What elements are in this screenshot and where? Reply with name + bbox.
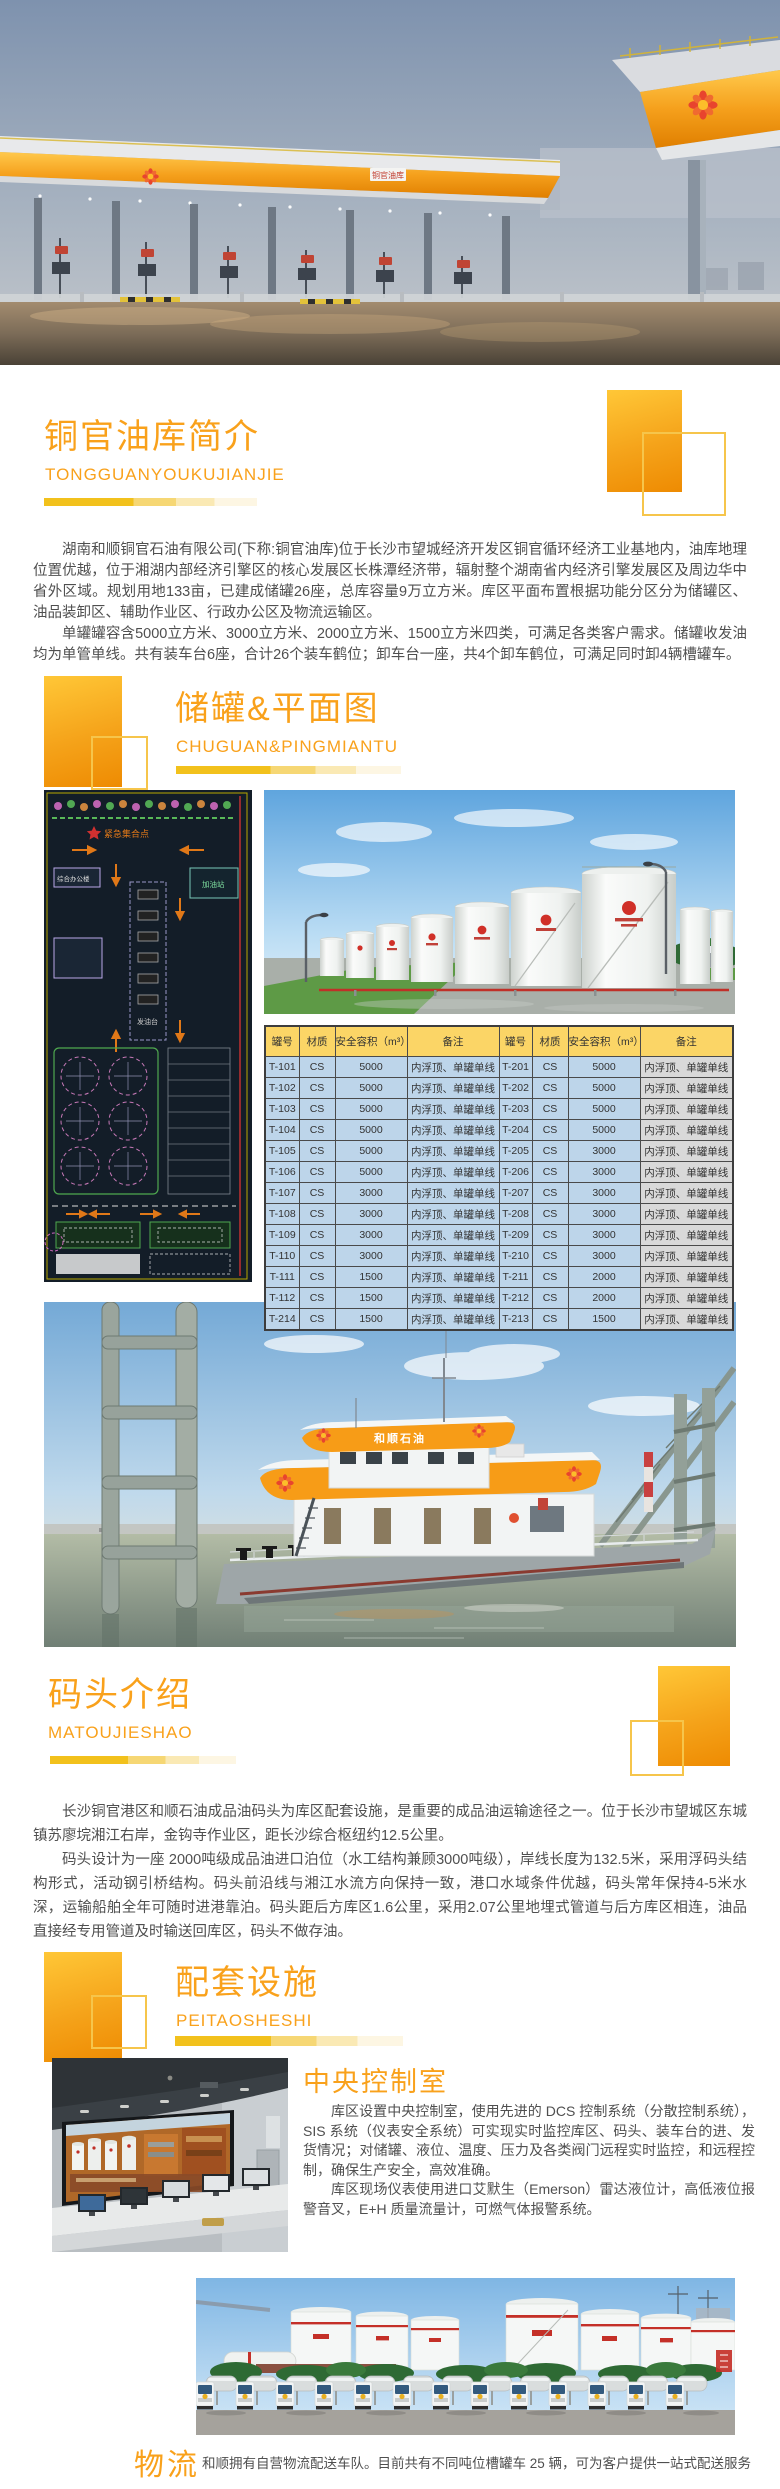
dock-paragraph-1: 长沙铜官港区和顺石油成品油码头为库区配套设施，是重要的成品油运输途径之一。位于长… [33,1800,747,1848]
table-cell: 内浮顶、单罐单线 [640,1162,733,1183]
table-cell: 5000 [568,1057,640,1078]
logistics-text: 和顺拥有自营物流配送车队。目前共有不同吨位槽罐车 25 辆，可为客户提供一站式配… [202,2452,751,2472]
table-cell: T-206 [499,1162,532,1183]
table-cell: CS [299,1204,335,1225]
section-subtitle-intro: TONGGUANYOUKUJIANJIE [45,466,285,483]
table-cell: T-202 [499,1078,532,1099]
table-cell: T-104 [265,1120,299,1141]
site-plan-cad-image: 紧急集合点 综合办公楼 加油站 发油台 [44,790,252,1282]
tank-table-body: T-101CS5000内浮顶、单罐单线T-201CS5000内浮顶、单罐单线T-… [265,1057,733,1331]
section-subtitle-facilities: PEITAOSHESHI [176,2012,312,2029]
table-cell: CS [532,1057,568,1078]
table-cell: T-204 [499,1120,532,1141]
table-cell: T-212 [499,1288,532,1309]
section-underline-bar [50,1756,236,1764]
table-cell: 内浮顶、单罐单线 [407,1204,499,1225]
intro-paragraphs: 湖南和顺铜官石油有限公司(下称:铜官油库)位于长沙市望城经济开发区铜官循环经济工… [33,540,747,666]
table-cell: T-201 [499,1057,532,1078]
table-row: T-109CS3000内浮顶、单罐单线T-209CS3000内浮顶、单罐单线 [265,1225,733,1246]
table-cell: 2000 [568,1267,640,1288]
table-cell: 内浮顶、单罐单线 [640,1141,733,1162]
table-cell: 1500 [335,1267,407,1288]
control-room-photo [52,2058,288,2252]
site-plan-gas-station-label: 加油站 [202,879,225,889]
table-row: T-112CS1500内浮顶、单罐单线T-212CS2000内浮顶、单罐单线 [265,1288,733,1309]
table-row: T-111CS1500内浮顶、单罐单线T-211CS2000内浮顶、单罐单线 [265,1267,733,1288]
table-cell: CS [299,1162,335,1183]
section-title-dock: 码头介绍 [48,1678,192,1712]
table-cell: 内浮顶、单罐单线 [407,1120,499,1141]
table-row: T-106CS5000内浮顶、单罐单线T-206CS3000内浮顶、单罐单线 [265,1162,733,1183]
table-cell: T-109 [265,1225,299,1246]
table-cell: 1500 [568,1309,640,1331]
tank-table-header-cell: 备注 [640,1026,733,1057]
table-cell: CS [532,1204,568,1225]
section-underline-bar [175,2036,403,2046]
brochure-page: 铜官油库 [0,0,780,2489]
table-cell: 内浮顶、单罐单线 [640,1078,733,1099]
table-cell: 1500 [335,1309,407,1331]
table-cell: 5000 [335,1057,407,1078]
table-cell: CS [532,1162,568,1183]
table-cell: 内浮顶、单罐单线 [640,1099,733,1120]
table-cell: T-102 [265,1078,299,1099]
table-cell: 内浮顶、单罐单线 [640,1309,733,1331]
table-cell: CS [299,1309,335,1331]
table-cell: T-213 [499,1309,532,1331]
table-cell: 内浮顶、单罐单线 [640,1246,733,1267]
intro-paragraph-1: 湖南和顺铜官石油有限公司(下称:铜官油库)位于长沙市望城经济开发区铜官循环经济工… [33,540,747,624]
table-cell: 2000 [568,1288,640,1309]
table-cell: CS [299,1078,335,1099]
site-plan-office-label: 综合办公楼 [57,874,90,883]
table-cell: 内浮顶、单罐单线 [407,1057,499,1078]
table-cell: 内浮顶、单罐单线 [407,1099,499,1120]
table-cell: T-101 [265,1057,299,1078]
control-room-paragraph-2: 库区现场仪表使用进口艾默生（Emerson）雷达液位计，高低液位报警音叉，E+H… [303,2180,755,2219]
table-row: T-101CS5000内浮顶、单罐单线T-201CS5000内浮顶、单罐单线 [265,1057,733,1078]
logistics-label: 物流 [134,2440,200,2484]
table-cell: T-214 [265,1309,299,1331]
table-row: T-110CS3000内浮顶、单罐单线T-210CS3000内浮顶、单罐单线 [265,1246,733,1267]
tank-table-header-cell: 安全容积（m³） [335,1026,407,1057]
table-cell: CS [532,1225,568,1246]
tank-table-header-cell: 罐号 [265,1026,299,1057]
table-cell: 内浮顶、单罐单线 [640,1288,733,1309]
table-cell: 3000 [568,1246,640,1267]
table-cell: T-207 [499,1183,532,1204]
tank-table-header-cell: 安全容积（m³） [568,1026,640,1057]
table-cell: 5000 [335,1120,407,1141]
control-room-title: 中央控制室 [303,2060,448,2099]
table-cell: T-105 [265,1141,299,1162]
table-cell: 内浮顶、单罐单线 [640,1204,733,1225]
tank-farm-photo [264,790,735,1014]
table-cell: 内浮顶、单罐单线 [407,1246,499,1267]
deco-square-outline [642,432,726,516]
tank-table-head-row: 罐号材质安全容积（m³）备注罐号材质安全容积（m³）备注 [265,1026,733,1057]
table-cell: 5000 [568,1120,640,1141]
table-cell: 5000 [335,1078,407,1099]
table-cell: 3000 [568,1141,640,1162]
table-cell: 内浮顶、单罐单线 [407,1183,499,1204]
table-cell: 内浮顶、单罐单线 [640,1183,733,1204]
dock-paragraph-2: 码头设计为一座 2000吨级成品油进口泊位（水工结构兼顾3000吨级），岸线长度… [33,1848,747,1944]
section-underline-bar [176,766,401,774]
table-cell: CS [299,1267,335,1288]
tank-table-header-cell: 材质 [532,1026,568,1057]
table-cell: 内浮顶、单罐单线 [640,1120,733,1141]
table-cell: CS [299,1183,335,1204]
section-title-tanks: 储罐&平面图 [175,692,380,726]
table-cell: CS [532,1309,568,1331]
table-cell: CS [299,1099,335,1120]
tank-capacity-table: 罐号材质安全容积（m³）备注罐号材质安全容积（m³）备注 T-101CS5000… [264,1025,734,1331]
deco-square-outline [91,736,148,790]
table-cell: T-106 [265,1162,299,1183]
deco-square-outline [630,1720,684,1776]
table-cell: T-108 [265,1204,299,1225]
control-room-paragraph-1: 库区设置中央控制室，使用先进的 DCS 控制系统（分散控制系统），SIS 系统（… [303,2102,755,2180]
site-plan-loading-island-label: 发油台 [137,1017,158,1026]
table-cell: CS [532,1183,568,1204]
section-title-intro: 铜官油库简介 [44,420,260,454]
table-cell: T-208 [499,1204,532,1225]
table-cell: 3000 [568,1204,640,1225]
table-cell: CS [299,1141,335,1162]
table-row: T-102CS5000内浮顶、单罐单线T-202CS5000内浮顶、单罐单线 [265,1078,733,1099]
table-cell: CS [532,1288,568,1309]
site-plan-assembly-label: 紧急集合点 [104,828,149,839]
table-cell: T-111 [265,1267,299,1288]
table-cell: T-210 [499,1246,532,1267]
table-cell: CS [532,1246,568,1267]
ship-brand-text: 和顺石油 [374,1431,426,1445]
table-cell: T-205 [499,1141,532,1162]
table-row: T-214CS1500内浮顶、单罐单线T-213CS1500内浮顶、单罐单线 [265,1309,733,1331]
deco-square-outline [91,1995,147,2049]
section-underline-bar [44,498,257,506]
table-cell: 内浮顶、单罐单线 [407,1225,499,1246]
table-cell: CS [532,1141,568,1162]
table-cell: 内浮顶、单罐单线 [640,1057,733,1078]
tank-table-header-cell: 罐号 [499,1026,532,1057]
table-cell: 内浮顶、单罐单线 [407,1162,499,1183]
table-cell: 内浮顶、单罐单线 [640,1225,733,1246]
table-cell: CS [299,1246,335,1267]
table-cell: T-203 [499,1099,532,1120]
table-cell: 1500 [335,1288,407,1309]
table-cell: T-107 [265,1183,299,1204]
tank-table-header-cell: 备注 [407,1026,499,1057]
section-subtitle-dock: MATOUJIESHAO [48,1724,193,1741]
table-cell: 5000 [568,1078,640,1099]
table-cell: 内浮顶、单罐单线 [640,1267,733,1288]
table-cell: T-209 [499,1225,532,1246]
table-row: T-108CS3000内浮顶、单罐单线T-208CS3000内浮顶、单罐单线 [265,1204,733,1225]
dock-paragraphs: 长沙铜官港区和顺石油成品油码头为库区配套设施，是重要的成品油运输途径之一。位于长… [33,1800,747,1944]
table-row: T-105CS5000内浮顶、单罐单线T-205CS3000内浮顶、单罐单线 [265,1141,733,1162]
table-cell: CS [299,1288,335,1309]
table-cell: CS [299,1057,335,1078]
table-cell: 3000 [335,1183,407,1204]
control-room-paragraphs: 库区设置中央控制室，使用先进的 DCS 控制系统（分散控制系统），SIS 系统（… [303,2102,755,2219]
table-cell: 3000 [335,1204,407,1225]
table-row: T-103CS5000内浮顶、单罐单线T-203CS5000内浮顶、单罐单线 [265,1099,733,1120]
table-cell: 内浮顶、单罐单线 [407,1288,499,1309]
table-cell: 内浮顶、单罐单线 [407,1309,499,1331]
section-subtitle-tanks: CHUGUAN&PINGMIANTU [176,738,398,755]
dock-ship-photo: 和顺石油 [44,1302,736,1647]
table-cell: 3000 [335,1225,407,1246]
striped-vent-tower [644,1452,653,1512]
table-cell: 5000 [335,1162,407,1183]
section-title-facilities: 配套设施 [175,1966,319,2000]
tank-table-header-cell: 材质 [299,1026,335,1057]
table-cell: CS [532,1267,568,1288]
intro-paragraph-2: 单罐罐容含5000立方米、3000立方米、2000立方米、1500立方米四类，可… [33,624,747,666]
table-cell: 5000 [335,1141,407,1162]
table-cell: 3000 [568,1183,640,1204]
table-row: T-104CS5000内浮顶、单罐单线T-204CS5000内浮顶、单罐单线 [265,1120,733,1141]
table-cell: 3000 [568,1225,640,1246]
table-cell: CS [532,1078,568,1099]
hero-photo-oil-depot-dusk: 铜官油库 [0,0,780,365]
depot-sign-text: 铜官油库 [372,170,404,180]
table-cell: 内浮顶、单罐单线 [407,1267,499,1288]
table-row: T-107CS3000内浮顶、单罐单线T-207CS3000内浮顶、单罐单线 [265,1183,733,1204]
table-cell: CS [299,1225,335,1246]
table-cell: CS [532,1120,568,1141]
table-cell: T-211 [499,1267,532,1288]
table-cell: 5000 [335,1099,407,1120]
tank-trucks-photo [196,2278,735,2435]
table-cell: CS [299,1120,335,1141]
table-cell: CS [532,1099,568,1120]
table-cell: T-112 [265,1288,299,1309]
table-cell: 5000 [568,1099,640,1120]
table-cell: 内浮顶、单罐单线 [407,1078,499,1099]
table-cell: 3000 [335,1246,407,1267]
table-cell: 内浮顶、单罐单线 [407,1141,499,1162]
table-cell: 3000 [568,1162,640,1183]
table-cell: T-110 [265,1246,299,1267]
table-cell: T-103 [265,1099,299,1120]
